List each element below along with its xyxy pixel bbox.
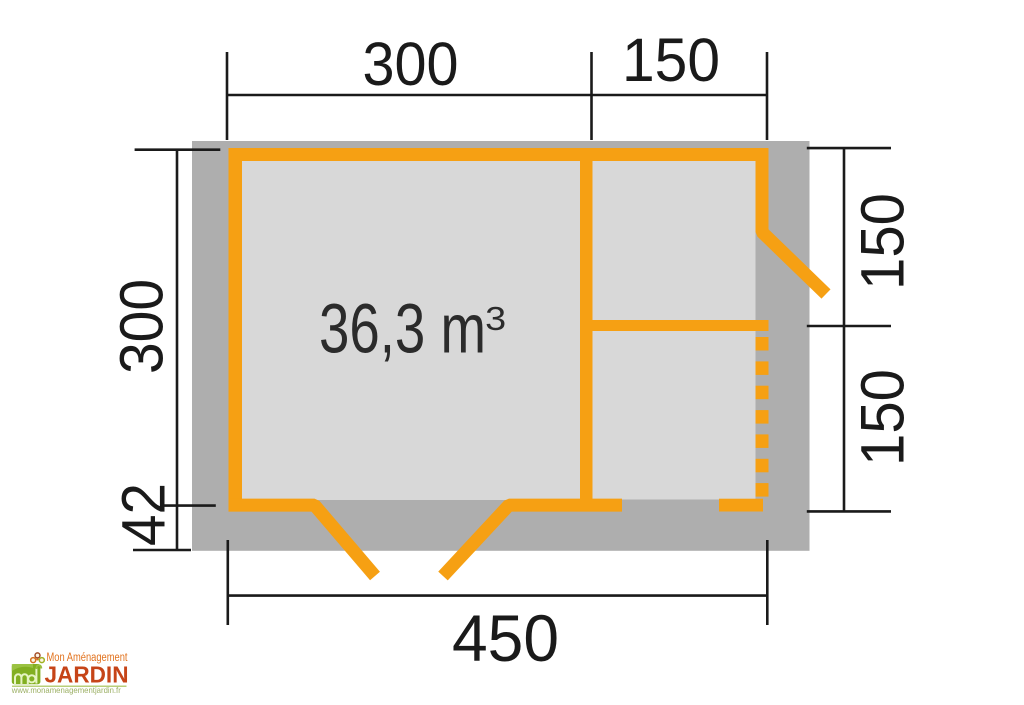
svg-text:300: 300: [108, 279, 176, 374]
svg-text:450: 450: [452, 601, 559, 675]
svg-text:300: 300: [363, 30, 459, 98]
svg-text:36,3 m: 36,3 m: [319, 290, 486, 368]
svg-text:150: 150: [849, 193, 917, 290]
svg-text:3: 3: [485, 300, 506, 337]
svg-text:JARDIN: JARDIN: [45, 662, 129, 688]
svg-text:www.monamenagementjardin.fr: www.monamenagementjardin.fr: [11, 685, 121, 695]
svg-text:150: 150: [622, 26, 720, 94]
svg-text:42: 42: [109, 483, 177, 546]
svg-text:150: 150: [849, 369, 917, 466]
